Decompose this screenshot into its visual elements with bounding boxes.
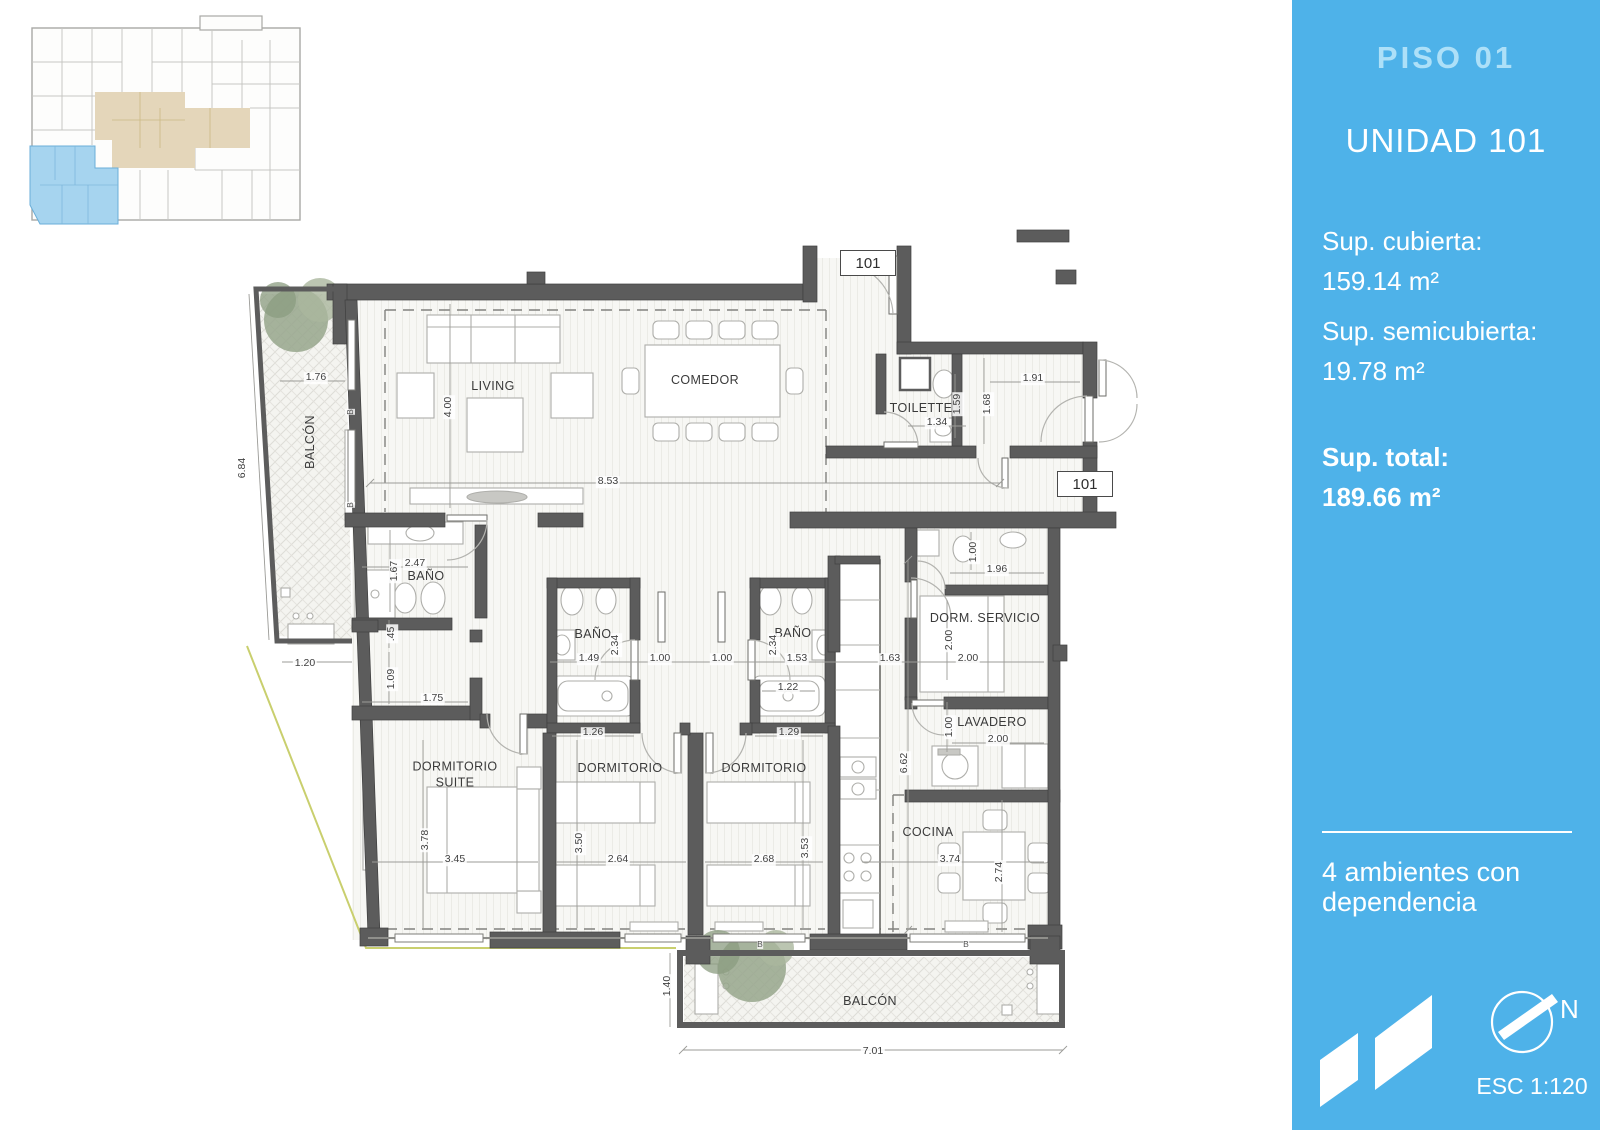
dimension-label: 1.00 bbox=[944, 715, 956, 739]
room-label: BALCÓN bbox=[303, 415, 317, 469]
room-label: DORMITORIO bbox=[721, 761, 806, 775]
dimension-label: 3.78 bbox=[420, 828, 432, 852]
floorplan-area: 101 101 LIVINGCOMEDORTOILETTEBAÑOBAÑOBAÑ… bbox=[0, 0, 1292, 1130]
room-label: BAÑO bbox=[774, 626, 811, 640]
dimension-label: 1.76 bbox=[304, 372, 328, 384]
dimension-label: 1.09 bbox=[386, 667, 398, 691]
dimension-label: 3.74 bbox=[938, 854, 962, 866]
dimension-label: 1.67 bbox=[389, 559, 401, 583]
north-compass-icon: N bbox=[1492, 992, 1579, 1052]
sidebar-footer-graphics: N ESC 1:120 bbox=[1292, 960, 1600, 1130]
dimension-label: 2.64 bbox=[606, 854, 630, 866]
dimension-label: 1.49 bbox=[577, 653, 601, 665]
dimension-label: 1.53 bbox=[785, 653, 809, 665]
dimension-label: 6.62 bbox=[899, 751, 911, 775]
dimension-label: 2.34 bbox=[768, 633, 780, 657]
semicovered-area-value: 19.78 m² bbox=[1322, 358, 1537, 384]
window-type-tag: B bbox=[345, 502, 355, 508]
key-plan bbox=[30, 16, 300, 224]
dimension-label: 1.29 bbox=[777, 727, 801, 739]
unit-description: 4 ambientes con dependencia bbox=[1322, 858, 1572, 917]
dimension-label: 1.63 bbox=[878, 653, 902, 665]
brand-logo-icon bbox=[1320, 995, 1432, 1107]
dimension-label: 3.53 bbox=[800, 836, 812, 860]
dimension-label: 2.34 bbox=[610, 633, 622, 657]
divider-line bbox=[1322, 831, 1572, 833]
covered-area-label: Sup. cubierta: bbox=[1322, 228, 1537, 254]
north-label: N bbox=[1560, 994, 1579, 1024]
room-label: COCINA bbox=[902, 825, 953, 839]
dimension-label: 1.68 bbox=[982, 392, 994, 416]
window-type-tag: B bbox=[345, 409, 355, 415]
room-label: DORMITORIO SUITE bbox=[395, 759, 515, 790]
dimension-label: 1.00 bbox=[710, 653, 734, 665]
dimension-label: 2.00 bbox=[944, 628, 956, 652]
room-label: LAVADERO bbox=[957, 715, 1026, 729]
window-type-tag: B bbox=[757, 939, 763, 949]
dimension-label: 1.26 bbox=[581, 727, 605, 739]
room-label: BAÑO bbox=[407, 569, 444, 583]
dimension-label: 1.40 bbox=[662, 974, 674, 998]
scale-label: ESC 1:120 bbox=[1476, 1073, 1587, 1099]
room-label: BAÑO bbox=[574, 627, 611, 641]
dimension-label: 1.00 bbox=[648, 653, 672, 665]
unit-number-tag: 101 bbox=[1057, 471, 1113, 497]
room-label: COMEDOR bbox=[671, 373, 739, 387]
dimension-label: .45 bbox=[386, 625, 398, 644]
total-area-label: Sup. total: bbox=[1322, 444, 1537, 470]
dimension-label: 2.00 bbox=[956, 653, 980, 665]
dimension-label: 2.47 bbox=[403, 558, 427, 570]
dimension-label: 6.84 bbox=[237, 456, 249, 480]
dimension-label: 2.68 bbox=[752, 854, 776, 866]
info-sidebar: PISO 01 UNIDAD 101 Sup. cubierta: 159.14… bbox=[1292, 0, 1600, 1130]
room-label: DORMITORIO bbox=[577, 761, 662, 775]
dimension-label: 8.53 bbox=[596, 476, 620, 488]
dimension-label: 1.96 bbox=[985, 564, 1009, 576]
area-summary: Sup. cubierta: 159.14 m² Sup. semicubier… bbox=[1322, 228, 1537, 524]
dimension-label: 2.00 bbox=[986, 734, 1010, 746]
unit-title: UNIDAD 101 bbox=[1292, 122, 1600, 160]
dimension-label: 1.34 bbox=[925, 417, 949, 429]
dimension-label: 7.01 bbox=[861, 1046, 885, 1058]
dimension-label: 4.00 bbox=[443, 395, 455, 419]
covered-area-value: 159.14 m² bbox=[1322, 268, 1537, 294]
dimension-label: 1.00 bbox=[968, 540, 980, 564]
room-label: DORM. SERVICIO bbox=[930, 611, 1040, 625]
window-type-tag: B bbox=[963, 939, 969, 949]
floorplan-drawing bbox=[0, 0, 1292, 1130]
room-label: BALCÓN bbox=[843, 994, 897, 1008]
room-label: TOILETTE bbox=[890, 401, 953, 415]
dimension-label: 1.20 bbox=[293, 658, 317, 670]
room-label: LIVING bbox=[471, 379, 514, 393]
dimension-label: 3.45 bbox=[443, 854, 467, 866]
semicovered-area-label: Sup. semicubierta: bbox=[1322, 318, 1537, 344]
dimension-label: 2.74 bbox=[994, 860, 1006, 884]
total-area-value: 189.66 m² bbox=[1322, 484, 1537, 510]
dimension-label: 1.75 bbox=[421, 693, 445, 705]
dimension-label: 1.59 bbox=[952, 392, 964, 416]
dimension-label: 1.91 bbox=[1021, 373, 1045, 385]
dimension-label: 1.22 bbox=[776, 682, 800, 694]
dimension-label: 3.50 bbox=[574, 831, 586, 855]
unit-number-tag: 101 bbox=[840, 250, 896, 276]
floor-title: PISO 01 bbox=[1292, 40, 1600, 76]
